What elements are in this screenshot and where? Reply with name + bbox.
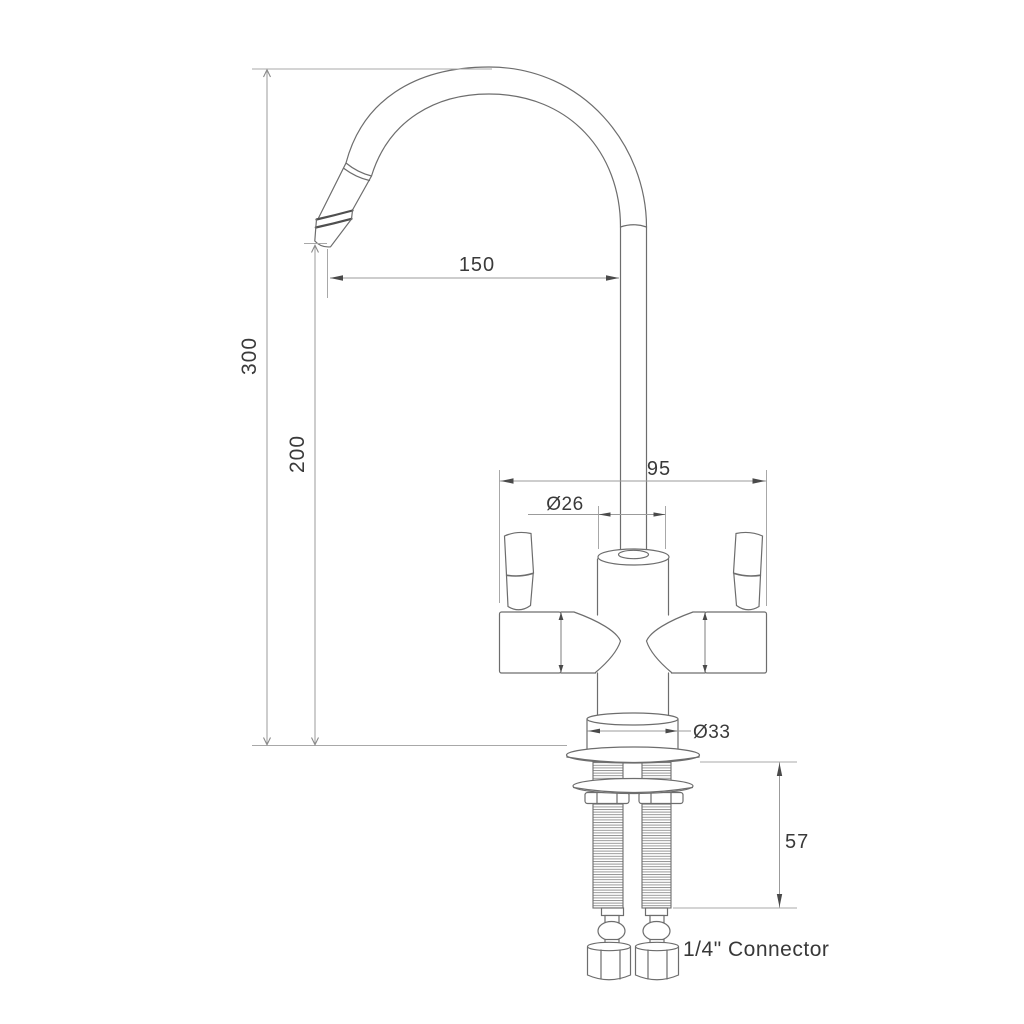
right-handle [734,532,763,609]
connector-callout-label: 1/4" Connector [683,938,829,961]
left-handle [505,532,534,609]
base-cylinder [587,713,678,751]
dim-57-label: 57 [785,831,809,853]
faucet-body [500,549,767,716]
dim-26-label: Ø26 [546,494,583,515]
left-valve-block [500,612,562,673]
right-valve-block [705,612,767,673]
faucet-dimension-drawing: 300 200 150 95 Ø26 Ø33 [0,0,1024,1024]
dimension-base-diameter: Ø33 [588,722,731,743]
dimension-shank-length: 57 [673,762,809,908]
spout-nozzle [315,211,353,247]
gooseneck-spout [319,67,647,227]
dim-300-label: 300 [238,337,261,375]
mounting-nuts [585,793,683,804]
dimension-spout-reach: 150 [328,249,620,298]
quarter-inch-connectors [588,908,679,980]
dimension-overall-height: 300 [238,70,271,746]
dim-33-label: Ø33 [693,722,730,743]
body-collar [598,549,669,565]
dimension-tip-height: 200 [286,244,327,746]
dimension-body-width: 95 [500,458,767,606]
base-flange [567,747,700,763]
spout-pipe [621,227,647,554]
faucet-technical-drawing-page: 300 200 150 95 Ø26 Ø33 [0,0,1024,1024]
dim-200-label: 200 [286,435,309,473]
dim-95-label: 95 [647,458,671,480]
washer-plate [573,779,693,794]
dimension-column-diameter: Ø26 [528,494,666,549]
dim-150-label: 150 [459,254,495,276]
